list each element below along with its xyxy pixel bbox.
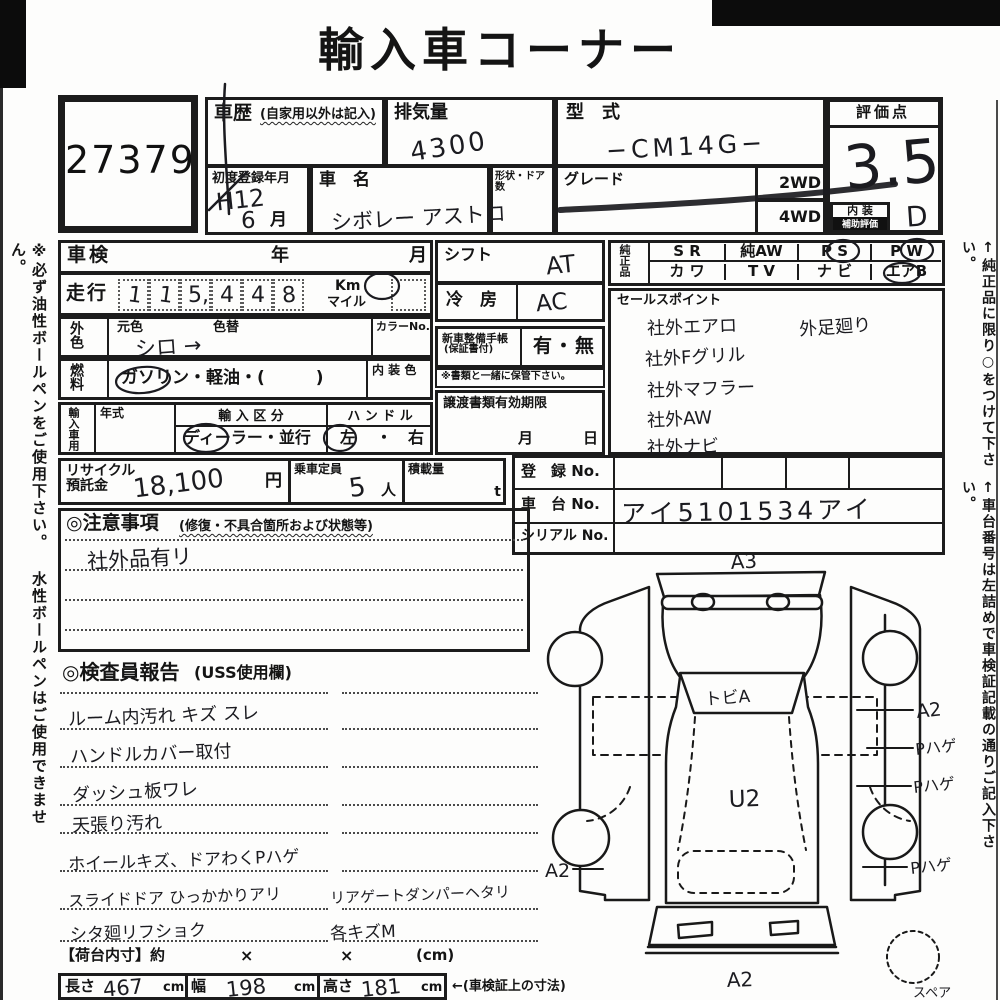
model-code-box: 型 式 −CM14G− [555, 97, 830, 167]
diagram-rear-bumper-lip [646, 947, 838, 953]
registration-cell-divider [848, 458, 850, 488]
shift-label: シフト [444, 247, 492, 264]
service-book-note: (保証書付) [444, 345, 520, 356]
mileage-digit: 4 [220, 283, 234, 308]
lot-number-box: 27379 [58, 95, 198, 233]
genuine-parts-grid: 純正品 S R 純AW P S P W カ ワ T V ナ ビ エアB [608, 240, 945, 286]
shaken-year-label: 年 [271, 247, 289, 266]
car-name-box: 車 名 シボレー アストロ [310, 165, 490, 235]
interior-sub-label: 補助評価 [833, 217, 887, 230]
height-unit: cm [421, 981, 442, 995]
drive-2wd-box: 2WD [755, 165, 830, 201]
genuine-opt-kawa: カ ワ [650, 264, 724, 280]
length-label: 長さ [65, 979, 95, 995]
handle-label: ハ ン ド ル [347, 409, 413, 424]
mile-label: マイル [327, 296, 366, 310]
cargo-x2: × [340, 948, 353, 965]
keep-note: ※書類と一緒に保管下さい。 [441, 372, 571, 383]
cooling-value: AC [535, 289, 569, 318]
length-unit: cm [163, 981, 184, 995]
interior-color-label: 内 装 色 [372, 364, 416, 377]
diagram-spare-circle [887, 931, 939, 983]
mileage-label: 走行 [66, 284, 108, 304]
grade-label: グレード [564, 172, 624, 188]
load-unit: t [494, 485, 501, 500]
shift-value: AT [545, 250, 577, 281]
lot-number: 27379 [65, 138, 191, 182]
import-class-label: 輸 入 区 分 [218, 409, 284, 424]
registration-no-label: 登 録 No. [521, 464, 600, 480]
first-reg-month-value: 6 [241, 208, 256, 234]
model-code-value: −CM14G− [605, 128, 766, 165]
transfer-month: 月 [518, 431, 533, 447]
diagram-taillight-right [770, 921, 798, 935]
capacity-value: 5 [347, 472, 368, 504]
diagram-label-right-3: Pハゲ [912, 774, 955, 797]
inspection-entry: ダッシュ板ワレ [71, 775, 198, 808]
diagram-taillight-left [678, 922, 712, 938]
keep-note-strip: ※書類と一緒に保管下さい。 [435, 368, 605, 388]
inspector-report: ◎検査員報告 (USS使用欄) ルーム内汚れ キズ スレ ハンドルカバー取付 ダ… [58, 660, 545, 950]
right-margin-note-1: ↑純正品に限り○をつけて下さい。 [958, 240, 998, 475]
score-box: 評価点 3.5 内 装 補助評価 D [823, 97, 943, 235]
displacement-value: 4300 [408, 126, 490, 168]
shaken-label: 車検 [67, 246, 111, 266]
year-model-label: 年式 [100, 407, 124, 420]
color-label: 外色 [69, 321, 83, 349]
score-label: 評価点 [856, 103, 910, 121]
left-margin-note: ※必ず油性ボールペンをご使用下さい。 水性ボールペンはご使用できません。 [8, 242, 50, 842]
shaken-month-label: 月 [409, 247, 427, 266]
width-unit: cm [294, 981, 315, 995]
notes-line [65, 539, 523, 541]
notes-entry: 社外品有リ [86, 540, 192, 575]
inspection-entry-right: 各キズM [330, 917, 397, 944]
sales-item: 社外マフラー [647, 373, 756, 403]
first-registration-box: 初度登録年月 H12 6 月 [205, 165, 310, 235]
mileage-row: 走行 1 1 5, 4 4 8 Km マイル [58, 272, 433, 316]
diagram-label-right-2: Pハゲ [914, 736, 955, 759]
interior-score-value: D [905, 199, 929, 233]
diagram-label-a3: A3 [730, 555, 758, 574]
inspection-entry: シタ廻リフショク [70, 916, 207, 946]
diagram-bumper-lip [662, 596, 822, 609]
first-registration-label: 初度登録年月 [212, 172, 290, 186]
diagram-label-center: U2 [728, 786, 760, 813]
handle-right: 右 [408, 430, 424, 447]
height-value: 181 [360, 974, 402, 1000]
service-book-options: 有・無 [533, 337, 596, 357]
diagram-front-bumper [657, 572, 825, 597]
width-label: 幅 [191, 979, 206, 995]
sales-points-box: セールスポイント 社外エアロ 社外Fグリル 社外マフラー 社外AW 社外ナビ 外… [608, 288, 945, 455]
score-value: 3.5 [841, 126, 942, 204]
diagram-wheel-front-right [863, 631, 917, 685]
diagram-van-body [662, 595, 821, 903]
history-label: 車歴 [214, 104, 252, 124]
transfer-docs-box: 譲渡書類有効期限 月 日 [435, 390, 605, 455]
dimensions-row: 長さ 467 cm 幅 198 cm 高さ 181 cm [58, 973, 447, 1000]
diagram-label-right-1: A2 [915, 698, 942, 723]
service-book-box: 新車整備手帳 (保証書付) 有・無 [435, 326, 605, 368]
cargo-x1: × [240, 948, 253, 965]
genuine-opt-airbag: エアB [870, 264, 941, 280]
scan-artifact-topright [712, 0, 1000, 26]
drive-4wd: 4WD [779, 209, 821, 226]
inspection-entry: スライドドア ひっかかりアリ [68, 880, 282, 911]
genuine-opt-navi: ナ ビ [797, 264, 870, 280]
notes-title: ◎注意事項 [66, 514, 159, 534]
model-code-label: 型 式 [566, 104, 620, 123]
diagram-label-windshield: トビA [704, 687, 751, 710]
sales-points-label: セールスポイント [617, 294, 721, 308]
sales-item: 社外AW [646, 403, 712, 432]
scan-edge-left [0, 88, 3, 1000]
car-name-label: 車 名 [319, 172, 370, 190]
registration-cell-divider [721, 458, 723, 488]
genuine-opt-ps: P S [797, 244, 870, 262]
serial-no-label: シリアル No. [521, 529, 608, 544]
inspector-subtitle: (USS使用欄) [194, 665, 292, 682]
diagram-wheel-front-left [548, 632, 602, 686]
inspection-entry: ハンドルカバー取付 [70, 737, 232, 769]
capacity-unit: 人 [381, 483, 396, 499]
import-block: 輸入車用 年式 輸 入 区 分 ディーラー・並行 ハ ン ド ル 左 ・ 右 [58, 402, 433, 455]
interior-label: 内 装 [833, 205, 887, 217]
car-name-value: シボレー アストロ [330, 197, 506, 236]
genuine-opt-sr: S R [650, 244, 724, 262]
diagram-label-bottom: A2 [726, 967, 753, 992]
transfer-day: 日 [583, 431, 598, 447]
import-label: 輸入車用 [68, 407, 79, 451]
handle-dot: ・ [376, 430, 392, 447]
inspection-entry: 天張り汚れ [72, 808, 163, 837]
cooling-label: 冷 房 [446, 292, 497, 310]
handle-left: 左 [340, 430, 356, 447]
cargo-label: 【荷台内寸】約 [60, 948, 165, 964]
cargo-size-row: 【荷台内寸】約 × × (cm) [58, 948, 548, 972]
recycle-row: リサイクル 預託金 18,100 円 乗車定員 5 人 積載量 t [58, 458, 506, 505]
shift-box: シフト AT [435, 240, 605, 284]
notes-box: ◎注意事項 (修復・不具合箇所および状態等) 社外品有リ [58, 508, 530, 652]
page-title: 輸入車コーナー [0, 26, 1000, 74]
service-book-label: 新車整備手帳 [442, 333, 518, 345]
genuine-label: 純正品 [619, 244, 630, 277]
height-label: 高さ [323, 979, 353, 995]
drive-2wd: 2WD [779, 175, 821, 192]
right-margin-note-2: ↑車台番号は左詰めで車検証記載の通りご記入下さい。 [958, 480, 998, 880]
notes-line [65, 599, 523, 601]
fuel-row: 燃料 ガソリン・軽油・( ) 内 装 色 [58, 358, 433, 400]
inspector-title: ◎検査員報告 [62, 662, 179, 683]
color-row: 外色 元色 色替 シロ → カラーNo. [58, 316, 433, 358]
displacement-label: 排気量 [394, 104, 448, 123]
capacity-label: 乗車定員 [294, 463, 342, 476]
genuine-opt-pw: P W [870, 244, 941, 262]
km-label: Km [335, 279, 360, 294]
load-label: 積載量 [408, 463, 444, 476]
shaken-row: 車検 年 月 [58, 240, 433, 274]
drive-4wd-box: 4WD [755, 199, 830, 235]
diagram-label-spare: スペア [913, 986, 951, 1000]
inspection-entry: ルーム内汚れ キズ スレ [68, 699, 260, 732]
month-suffix: 月 [270, 212, 287, 230]
registration-block: 登 録 No. 車 台 No. アイ5101534アイ シリアル No. [512, 455, 945, 555]
mileage-digit: 4 [251, 283, 265, 308]
mileage-digit: 5, [188, 283, 209, 308]
genuine-opt-aw: 純AW [724, 244, 797, 262]
genuine-opt-tv: T V [724, 264, 797, 280]
cargo-unit: (cm) [416, 948, 454, 964]
notes-subtitle: (修復・不具合箇所および状態等) [179, 520, 373, 534]
import-options: ディーラー・並行 [184, 430, 311, 447]
displacement-box: 排気量 4300 [385, 97, 555, 167]
chassis-no-label: 車 台 No. [521, 497, 600, 513]
auction-sheet: 輸入車コーナー 27379 車歴 (自家用以外は記入) 排気量 4300 型 式… [0, 0, 1000, 1000]
interior-grade-label-box: 内 装 補助評価 [830, 202, 890, 230]
diagram-label-right-4: Pハゲ [909, 855, 952, 878]
sales-item: 社外エアロ [647, 311, 738, 340]
fuel-label: 燃料 [69, 363, 83, 391]
width-value: 198 [225, 974, 267, 1000]
cooling-box: 冷 房 AC [435, 282, 605, 322]
notes-line [65, 629, 523, 631]
fuel-options: ガソリン・軽油・( ) [121, 370, 324, 388]
length-value: 467 [102, 974, 144, 1000]
recycle-unit: 円 [265, 473, 282, 491]
sales-side-note: 外足廻り [798, 311, 872, 342]
shape-doors-label: 形状・ドア数 [495, 172, 552, 193]
inspection-entry-right: リアゲートダンパーヘタリ [330, 881, 511, 908]
mileage-digit: 1 [126, 282, 143, 309]
transfer-docs-label: 譲渡書類有効期限 [443, 397, 547, 411]
history-note: (自家用以外は記入) [260, 108, 376, 122]
car-damage-diagram: A3 トビA U2 A2 Pハゲ Pハゲ Pハゲ A2 A2 スペア [545, 555, 955, 1000]
mileage-digit: 1 [157, 282, 174, 309]
color-no-label: カラーNo. [376, 321, 430, 333]
mileage-digit: 8 [281, 282, 297, 308]
history-box: 車歴 (自家用以外は記入) [205, 97, 385, 167]
sales-item: 社外Fグリル [644, 340, 746, 371]
diagram-label-left-1: A2 [545, 860, 570, 882]
registration-cell-divider [785, 458, 787, 488]
recolor-label: 色替 [213, 321, 239, 335]
